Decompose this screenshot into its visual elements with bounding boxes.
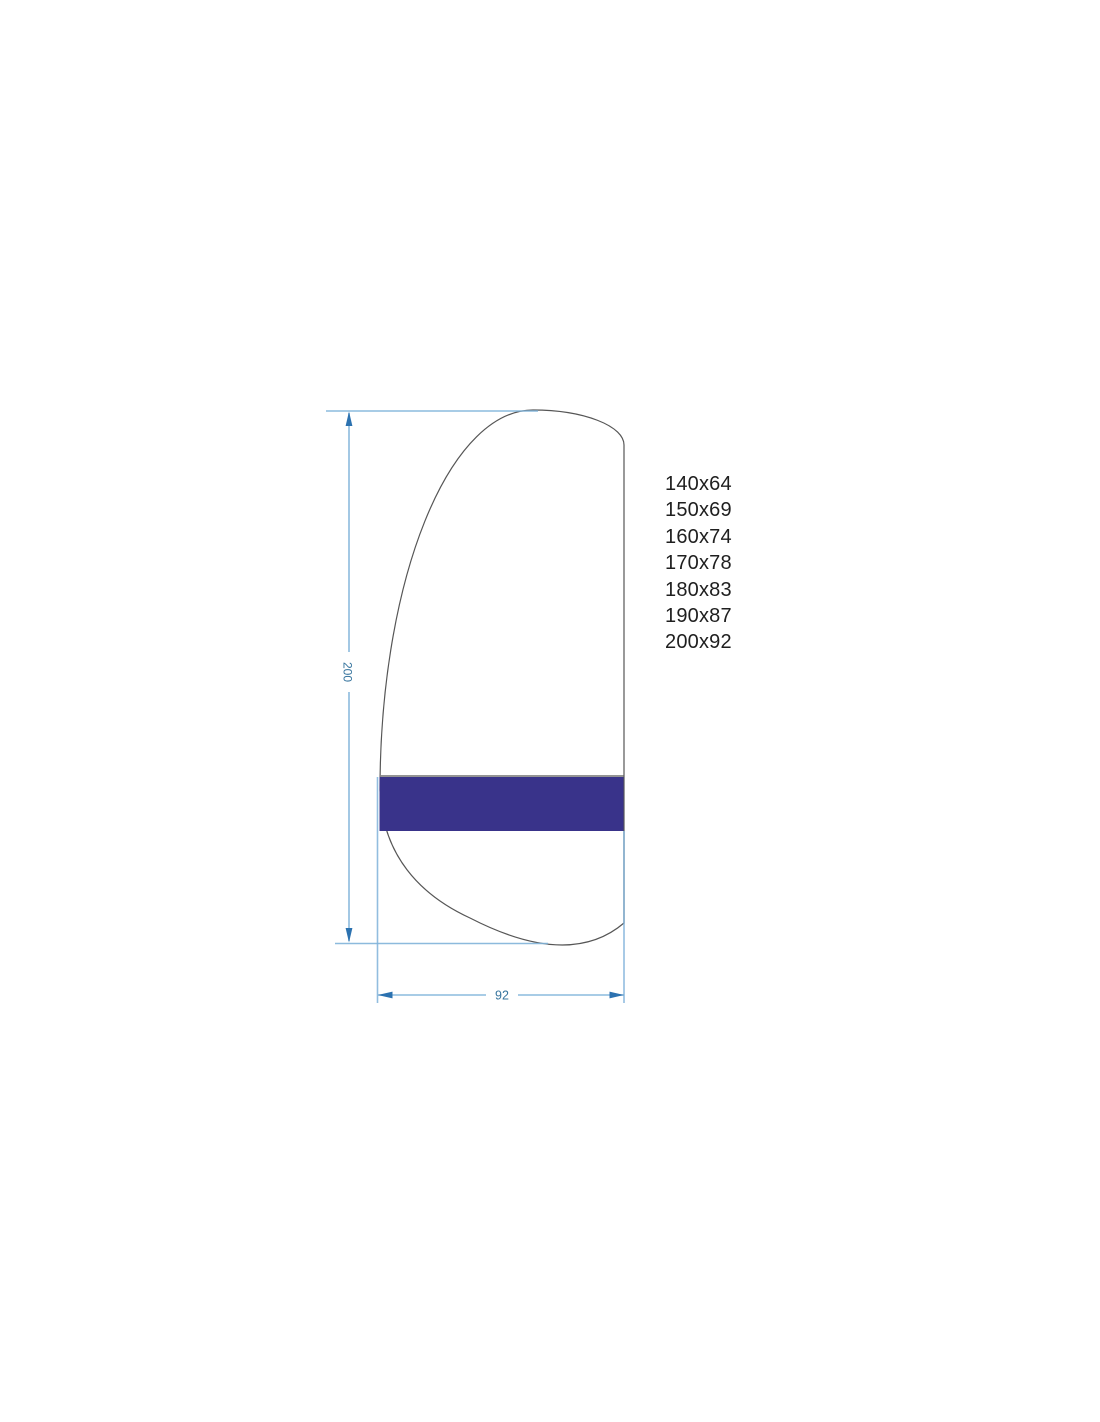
size-option: 150x69	[665, 497, 732, 523]
size-option: 140x64	[665, 471, 732, 497]
down-arrowhead-icon	[346, 928, 353, 943]
product-outline	[380, 410, 624, 945]
size-option: 170x78	[665, 550, 732, 576]
color-band	[380, 777, 624, 831]
height-dimension-value: 200	[341, 662, 355, 682]
drawing-canvas: 200 92 140x64 150x69 160x74 170x78 180x8…	[0, 0, 1100, 1422]
width-dimension-value: 92	[495, 989, 509, 1003]
up-arrowhead-icon	[346, 412, 353, 427]
size-option: 160x74	[665, 524, 732, 550]
left-arrowhead-icon	[378, 992, 393, 999]
size-list: 140x64 150x69 160x74 170x78 180x83 190x8…	[665, 471, 732, 656]
right-arrowhead-icon	[610, 992, 625, 999]
size-option: 180x83	[665, 577, 732, 603]
size-option: 200x92	[665, 629, 732, 655]
size-option: 190x87	[665, 603, 732, 629]
technical-drawing: 200 92	[0, 0, 1100, 1422]
